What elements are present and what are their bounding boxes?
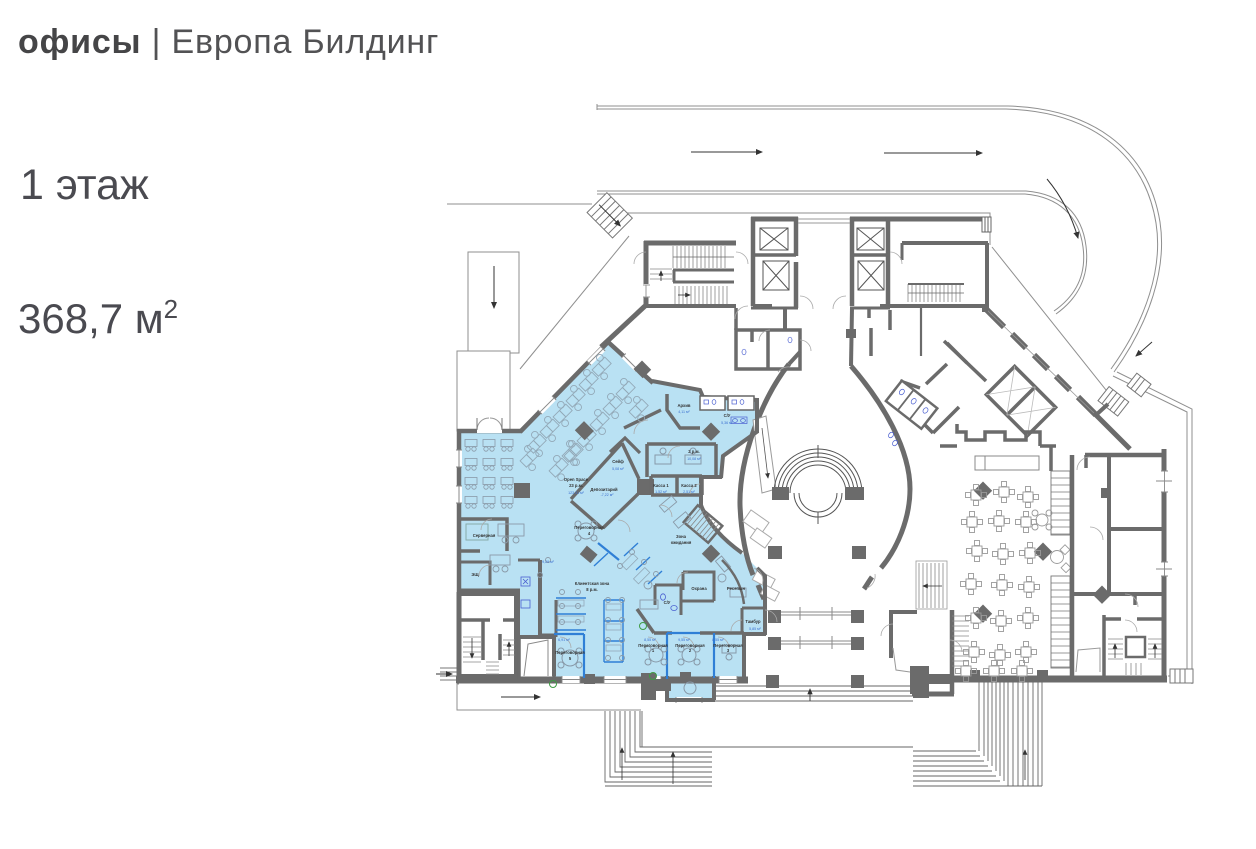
svg-text:Тамбур: Тамбур: [745, 619, 761, 624]
svg-text:1,52 м²: 1,52 м²: [655, 490, 667, 494]
svg-text:Касса 2: Касса 2: [681, 483, 697, 488]
svg-text:Охрана: Охрана: [691, 586, 707, 591]
svg-text:23 р.м.: 23 р.м.: [569, 483, 583, 488]
svg-text:Ресепшн: Ресепшн: [727, 586, 746, 591]
svg-text:4,11 м²: 4,11 м²: [678, 410, 690, 414]
svg-text:ЭЩ: ЭЩ: [471, 572, 479, 577]
svg-text:10,08 м²: 10,08 м²: [687, 457, 701, 461]
svg-text:Депозитарий: Депозитарий: [590, 487, 618, 492]
svg-text:Архив: Архив: [677, 403, 690, 408]
svg-text:9,55 м²: 9,55 м²: [678, 638, 690, 642]
svg-text:123,31 м²: 123,31 м²: [568, 491, 584, 495]
svg-text:2,51 м²: 2,51 м²: [683, 490, 695, 494]
svg-text:Переговорная: Переговорная: [555, 650, 585, 655]
svg-text:8,55 м²: 8,55 м²: [644, 638, 656, 642]
svg-text:Зона: Зона: [676, 534, 687, 539]
svg-text:ожидания: ожидания: [671, 540, 692, 545]
svg-text:Сейф: Сейф: [612, 459, 624, 464]
svg-text:Касса 1: Касса 1: [653, 483, 669, 488]
svg-text:8 р.м.: 8 р.м.: [586, 587, 597, 592]
svg-text:6,91 м²: 6,91 м²: [558, 638, 570, 642]
svg-text:5,08 м²: 5,08 м²: [612, 467, 624, 471]
svg-text:Серверная: Серверная: [473, 533, 496, 538]
svg-text:Open Space: Open Space: [564, 477, 589, 482]
svg-text:С/У: С/У: [664, 600, 671, 605]
svg-text:8,55 м²: 8,55 м²: [712, 638, 724, 642]
svg-text:9,29 м²: 9,29 м²: [542, 560, 554, 564]
svg-text:-7,22 м²: -7,22 м²: [601, 493, 615, 497]
svg-text:5,36 м²: 5,36 м²: [721, 421, 733, 425]
svg-text:С/У: С/У: [724, 413, 731, 418]
svg-text:Клиентская зона: Клиентская зона: [575, 581, 610, 586]
svg-text:Переговорная: Переговорная: [574, 525, 604, 530]
svg-text:5,85 м²: 5,85 м²: [749, 627, 761, 631]
svg-text:2 р.м.: 2 р.м.: [688, 449, 699, 454]
